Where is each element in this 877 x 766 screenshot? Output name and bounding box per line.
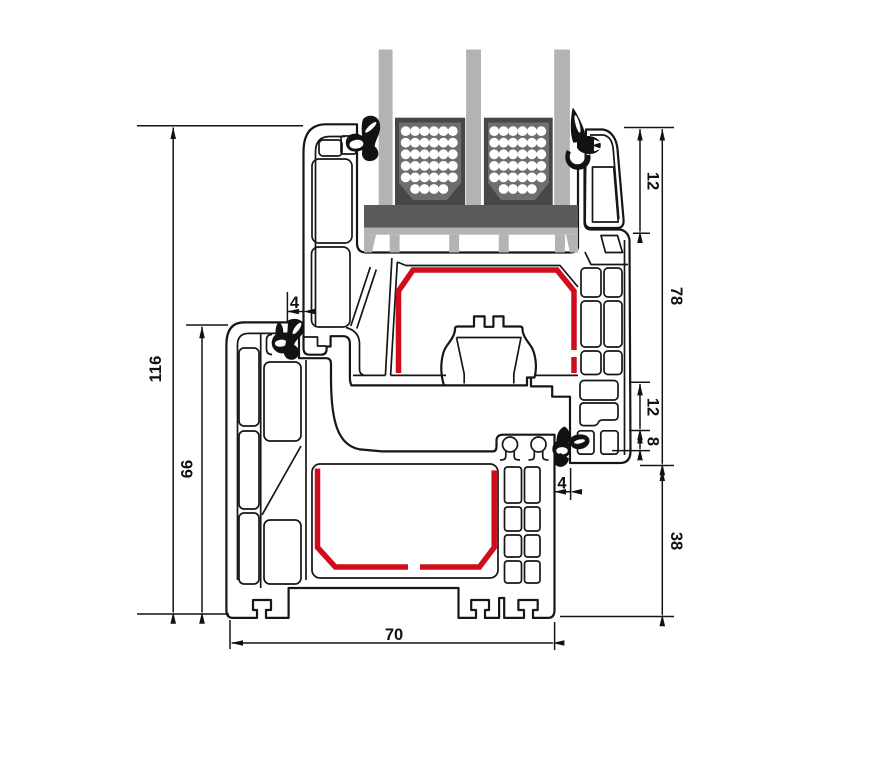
svg-text:12: 12 <box>644 398 662 416</box>
svg-text:38: 38 <box>667 532 685 550</box>
svg-text:8: 8 <box>644 437 662 446</box>
svg-text:116: 116 <box>147 356 165 383</box>
svg-text:78: 78 <box>667 287 685 305</box>
svg-text:70: 70 <box>385 626 403 644</box>
svg-text:12: 12 <box>644 172 662 190</box>
svg-text:4: 4 <box>557 475 567 493</box>
svg-text:4: 4 <box>290 294 300 312</box>
svg-text:66: 66 <box>179 460 197 478</box>
